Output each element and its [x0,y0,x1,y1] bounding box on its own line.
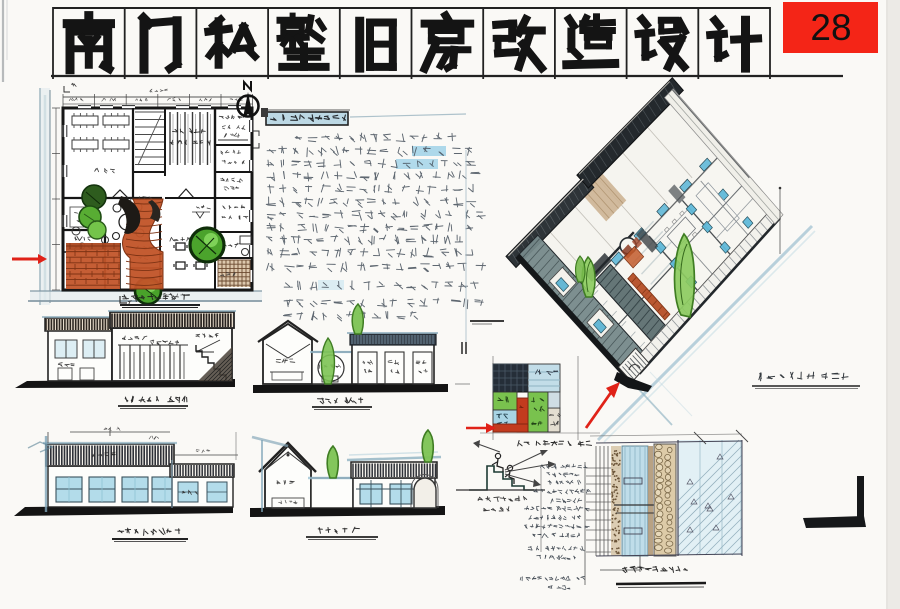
svg-text:28: 28 [810,7,851,48]
